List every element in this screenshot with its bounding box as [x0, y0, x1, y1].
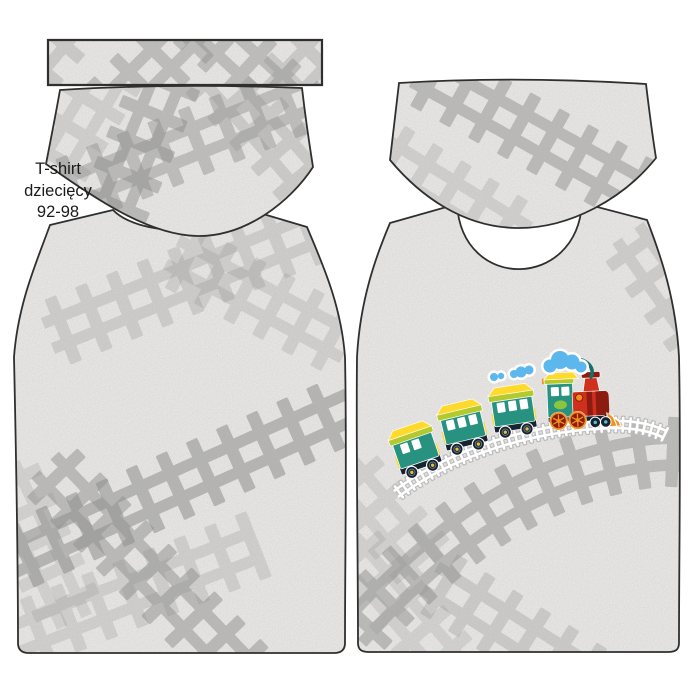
piece-back-body — [0, 184, 358, 696]
size-label-line1: T-shirt — [6, 159, 110, 181]
piece-front-body — [324, 203, 700, 700]
fabric-panel-preview: T-shirt dziecięcy 92-98 — [0, 0, 700, 700]
size-label: T-shirt dziecięcy 92-98 — [6, 159, 110, 224]
pattern-sheet — [0, 0, 700, 700]
size-label-line2: dziecięcy — [6, 181, 110, 203]
size-label-line3: 92-98 — [6, 202, 110, 224]
